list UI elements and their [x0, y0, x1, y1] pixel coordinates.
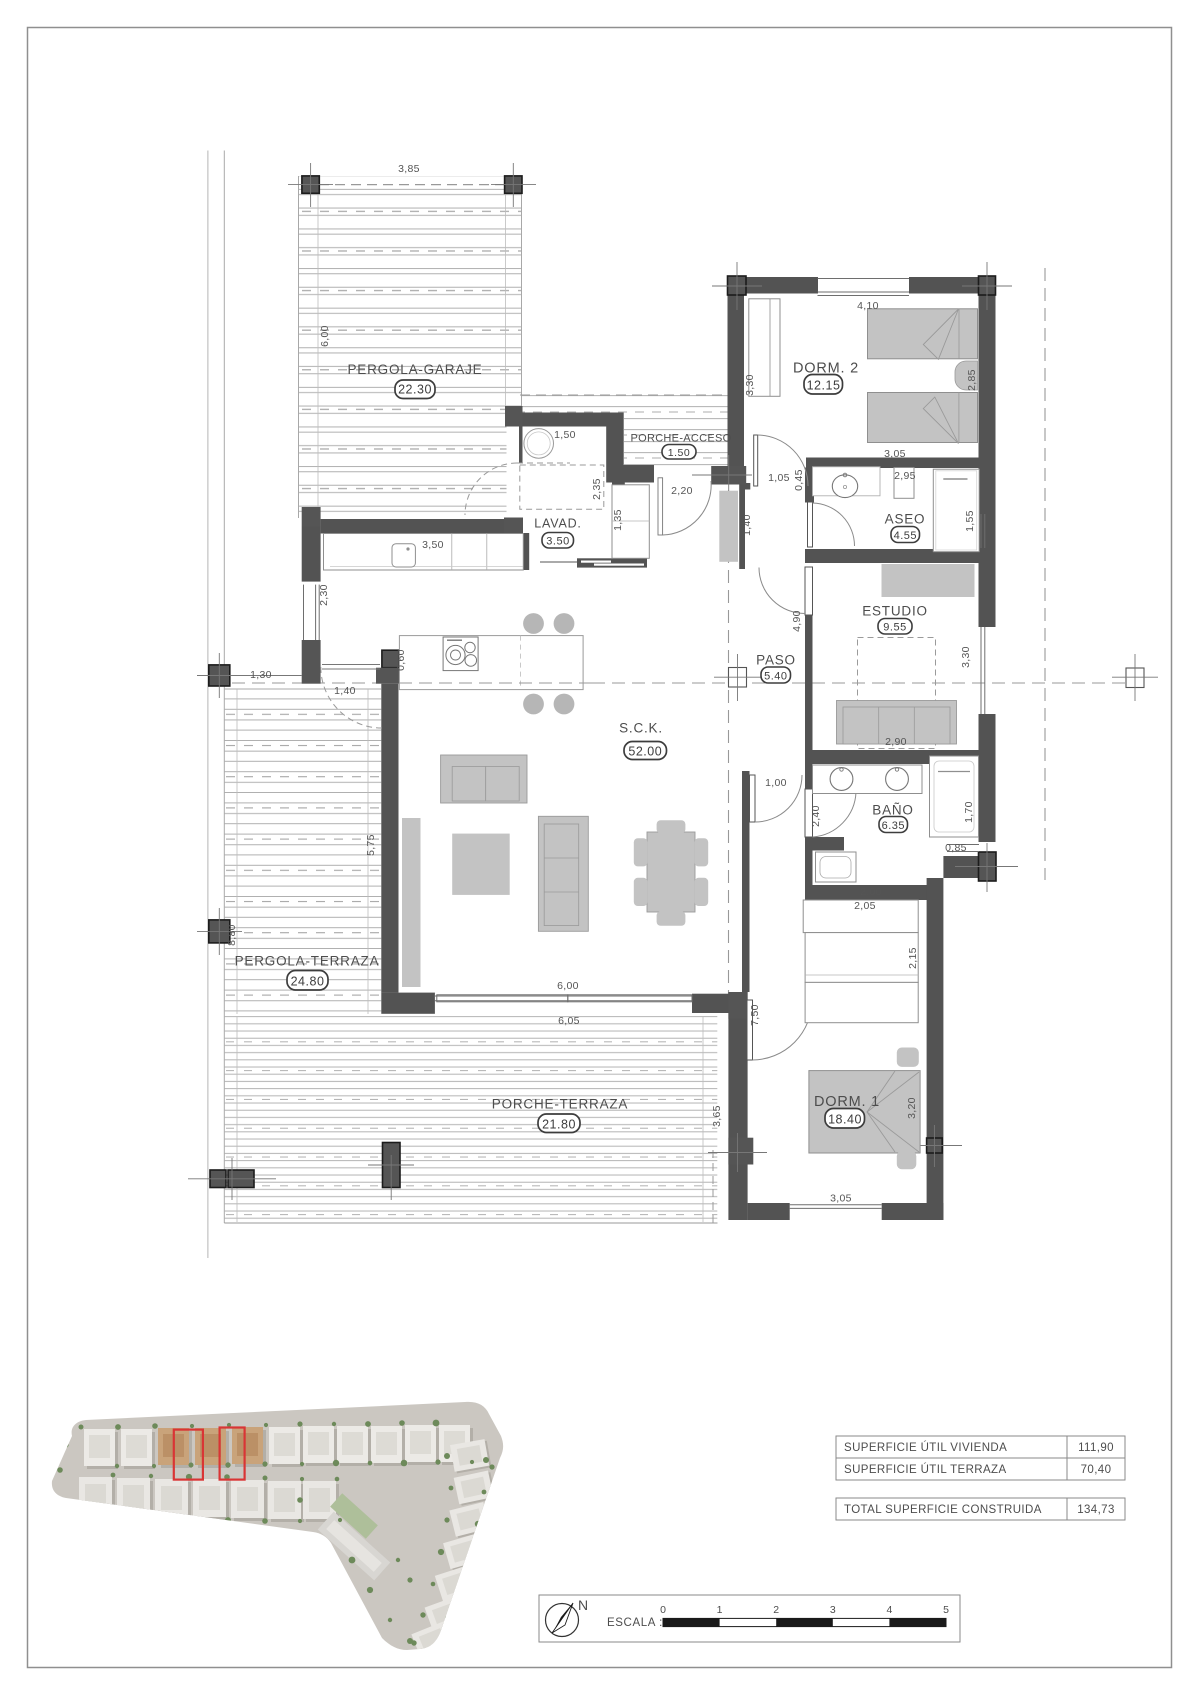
svg-text:ESTUDIO: ESTUDIO [862, 604, 928, 619]
svg-text:0,85: 0,85 [945, 842, 967, 854]
svg-text:3,50: 3,50 [422, 539, 444, 551]
svg-text:2,00: 2,00 [860, 886, 882, 898]
svg-text:BAÑO: BAÑO [872, 803, 913, 818]
svg-text:6,05: 6,05 [558, 1015, 580, 1027]
svg-text:2,85: 2,85 [966, 369, 978, 391]
svg-text:1,55: 1,55 [964, 510, 976, 532]
svg-text:1,40: 1,40 [741, 514, 753, 536]
svg-text:PASO: PASO [756, 653, 796, 668]
svg-text:1,70: 1,70 [963, 801, 975, 823]
svg-text:4,10: 4,10 [857, 300, 879, 312]
svg-text:6,00: 6,00 [557, 980, 579, 992]
svg-text:70,40: 70,40 [1081, 1464, 1112, 1476]
svg-text:S.C.K.: S.C.K. [619, 721, 663, 736]
svg-text:111,90: 111,90 [1078, 1442, 1114, 1454]
svg-text:2,20: 2,20 [671, 485, 693, 497]
svg-text:1,35: 1,35 [612, 509, 624, 531]
svg-text:3,30: 3,30 [960, 646, 972, 668]
svg-text:6,00: 6,00 [319, 325, 331, 347]
svg-text:PERGOLA-GARAJE: PERGOLA-GARAJE [348, 362, 483, 377]
svg-text:9.55: 9.55 [883, 622, 906, 634]
svg-text:2,05: 2,05 [854, 900, 876, 912]
svg-text:1,00: 1,00 [765, 777, 787, 789]
svg-text:18.40: 18.40 [828, 1113, 862, 1127]
svg-text:3: 3 [830, 1604, 836, 1616]
svg-text:0,60: 0,60 [395, 649, 407, 671]
svg-text:3,05: 3,05 [830, 1193, 852, 1205]
svg-text:1: 1 [717, 1604, 723, 1616]
svg-text:7,50: 7,50 [749, 1004, 761, 1026]
svg-text:1,30: 1,30 [250, 669, 272, 681]
svg-text:ASEO: ASEO [885, 512, 926, 527]
svg-text:3,05: 3,05 [884, 448, 906, 460]
svg-text:PORCHE-TERRAZA: PORCHE-TERRAZA [492, 1097, 628, 1112]
svg-text:DORM. 1: DORM. 1 [814, 1094, 880, 1110]
svg-text:134,73: 134,73 [1077, 1504, 1115, 1516]
svg-text:2: 2 [773, 1604, 779, 1616]
svg-text:3,30: 3,30 [744, 374, 756, 396]
svg-text:2,35: 2,35 [591, 478, 603, 500]
svg-text:1.50: 1.50 [668, 447, 690, 459]
svg-text:4: 4 [886, 1604, 892, 1616]
svg-text:3.50: 3.50 [546, 536, 569, 548]
svg-text:2,90: 2,90 [885, 736, 907, 748]
svg-text:2,30: 2,30 [318, 584, 330, 606]
svg-text:1,05: 1,05 [768, 472, 790, 484]
svg-text:ESCALA :: ESCALA : [607, 1617, 663, 1629]
svg-text:12.15: 12.15 [807, 379, 841, 393]
svg-text:2,40: 2,40 [810, 805, 822, 827]
svg-text:SUPERFICIE ÚTIL VIVIENDA: SUPERFICIE ÚTIL VIVIENDA [844, 1441, 1007, 1454]
svg-text:24.80: 24.80 [291, 975, 325, 989]
svg-text:0: 0 [660, 1604, 666, 1616]
svg-text:5.40: 5.40 [764, 671, 787, 683]
svg-text:52.00: 52.00 [628, 744, 662, 758]
svg-text:1,40: 1,40 [334, 685, 356, 697]
svg-text:8,80: 8,80 [226, 924, 238, 946]
svg-text:3,65: 3,65 [711, 1105, 723, 1127]
svg-text:2,95: 2,95 [894, 470, 916, 482]
svg-text:PERGOLA-TERRAZA: PERGOLA-TERRAZA [235, 954, 380, 969]
svg-text:22.30: 22.30 [398, 383, 432, 397]
svg-text:5: 5 [943, 1604, 949, 1616]
svg-text:1,50: 1,50 [554, 429, 576, 441]
svg-text:3,85: 3,85 [398, 163, 420, 175]
svg-text:3,20: 3,20 [906, 1097, 918, 1119]
svg-text:PORCHE-ACCESO: PORCHE-ACCESO [630, 433, 731, 445]
svg-text:N: N [578, 1597, 588, 1613]
svg-text:SUPERFICIE ÚTIL TERRAZA: SUPERFICIE ÚTIL TERRAZA [844, 1463, 1007, 1476]
svg-text:0,45: 0,45 [793, 469, 805, 491]
svg-text:TOTAL SUPERFICIE CONSTRUIDA: TOTAL SUPERFICIE CONSTRUIDA [844, 1504, 1042, 1516]
svg-text:21.80: 21.80 [542, 1118, 576, 1132]
svg-text:LAVAD.: LAVAD. [534, 517, 581, 531]
svg-text:4,90: 4,90 [791, 610, 803, 632]
svg-text:2,15: 2,15 [907, 947, 919, 969]
svg-text:5,75: 5,75 [365, 834, 377, 856]
svg-text:4.55: 4.55 [894, 530, 917, 542]
svg-text:6.35: 6.35 [882, 820, 905, 832]
